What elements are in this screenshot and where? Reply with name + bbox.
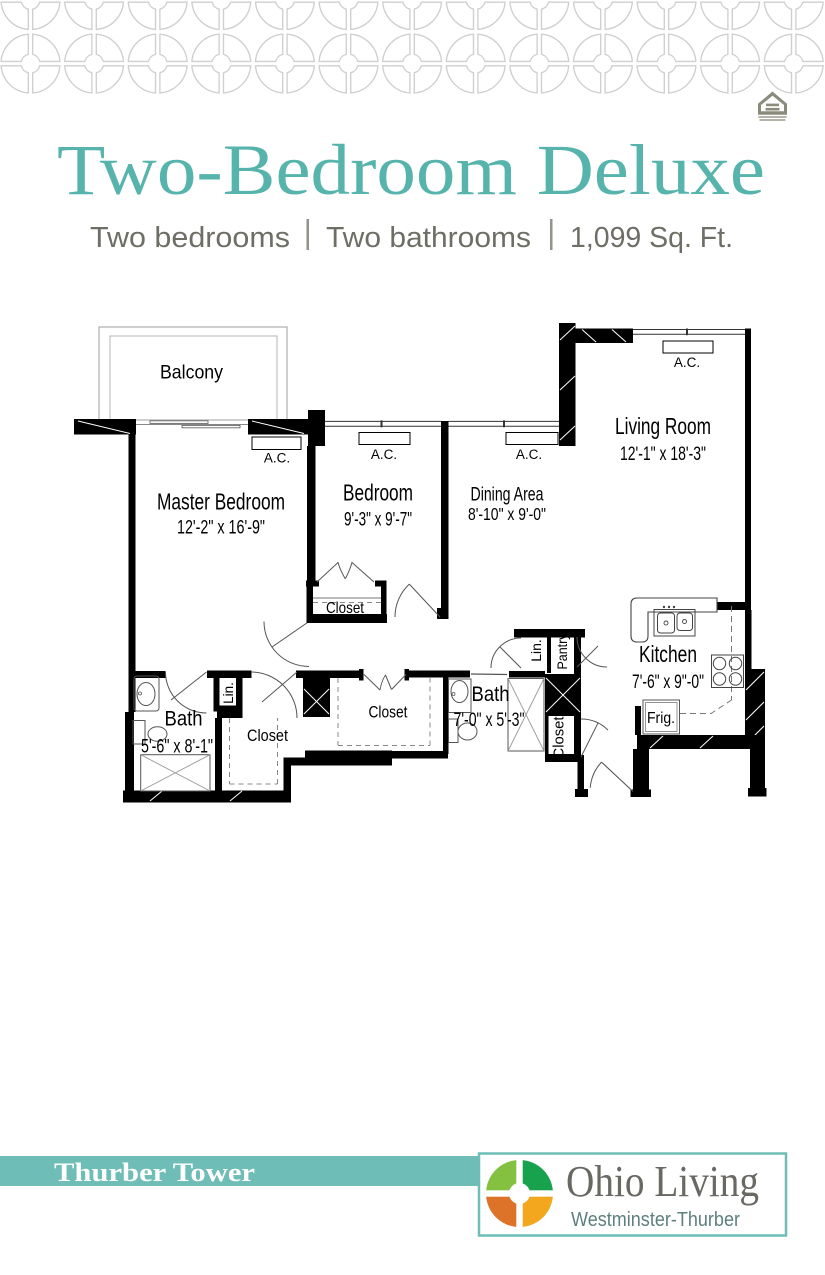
svg-text:9'-3" x 9'-7": 9'-3" x 9'-7" — [344, 509, 412, 531]
svg-text:A.C.: A.C. — [674, 355, 700, 370]
svg-text:Lin.: Lin. — [221, 682, 236, 704]
svg-text:Closet: Closet — [369, 704, 408, 722]
svg-text:Balcony: Balcony — [160, 362, 223, 384]
svg-text:Closet: Closet — [247, 727, 288, 745]
svg-text:Closet: Closet — [552, 717, 568, 759]
svg-text:Kitchen: Kitchen — [639, 641, 697, 667]
svg-text:Pantry: Pantry — [554, 634, 570, 670]
svg-text:Thurber Tower: Thurber Tower — [54, 1158, 255, 1187]
svg-text:Two-Bedroom Deluxe: Two-Bedroom Deluxe — [57, 131, 765, 210]
svg-text:Westminster-Thurber: Westminster-Thurber — [571, 1208, 740, 1231]
svg-text:Bath: Bath — [165, 707, 203, 731]
svg-text:Two bathrooms: Two bathrooms — [326, 222, 531, 254]
svg-text:A.C.: A.C. — [371, 447, 397, 462]
svg-text:Living Room: Living Room — [615, 413, 711, 439]
svg-text:Bath: Bath — [472, 682, 510, 706]
svg-text:1,099 Sq. Ft.: 1,099 Sq. Ft. — [570, 222, 733, 254]
svg-text:5'-6" x 8'-1": 5'-6" x 8'-1" — [141, 737, 213, 758]
svg-text:Frig.: Frig. — [647, 710, 675, 727]
svg-text:Ohio Living: Ohio Living — [566, 1157, 759, 1206]
svg-text:A.C.: A.C. — [264, 451, 290, 466]
svg-text:7'-6" x 9"-0": 7'-6" x 9"-0" — [632, 671, 704, 693]
svg-text:A.C.: A.C. — [516, 447, 542, 462]
svg-text:Master Bedroom: Master Bedroom — [157, 489, 285, 515]
svg-text:7'-0" x 5'-3": 7'-0" x 5'-3" — [454, 710, 525, 731]
svg-text:12'-1" x 18'-3": 12'-1" x 18'-3" — [620, 444, 706, 465]
svg-text:Lin.: Lin. — [528, 639, 544, 662]
svg-text:8'-10" x 9'-0": 8'-10" x 9'-0" — [468, 504, 546, 524]
svg-text:Closet: Closet — [326, 600, 364, 617]
svg-text:12'-2" x 16'-9": 12'-2" x 16'-9" — [177, 517, 265, 539]
svg-text:Dining Area: Dining Area — [471, 484, 544, 506]
svg-text:Bedroom: Bedroom — [343, 480, 413, 506]
svg-text:Two bedrooms: Two bedrooms — [90, 222, 290, 254]
